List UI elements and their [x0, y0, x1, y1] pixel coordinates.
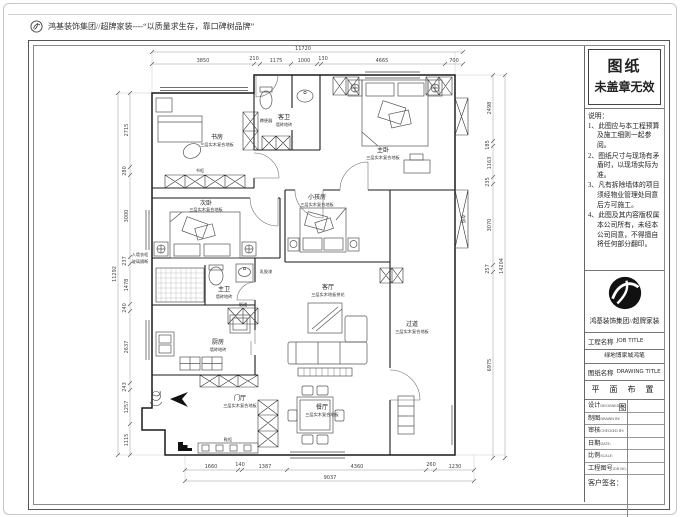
field-designed-en: DESIGNED BY:: [600, 404, 625, 408]
field-jobno-label: 工程图号: [588, 465, 613, 472]
room-foyer: 门厅: [234, 394, 246, 402]
annotation-wall-note1: 入墙衣柜: [132, 251, 149, 258]
room-study: 书房: [211, 133, 223, 141]
room-master-material: 三层实木复合地板: [366, 154, 400, 161]
shoe-cabinet: [198, 443, 258, 453]
room-kitchen-material: 墙砖地砖: [210, 346, 227, 353]
entry-marker: [150, 390, 188, 407]
notes-title: 说明：: [588, 112, 661, 122]
dim-right-1: 185: [485, 140, 491, 150]
dim-left-1: 280: [122, 166, 128, 176]
dim-bottom-0: 1660: [205, 464, 218, 470]
dim-left-8: 1257: [124, 401, 130, 414]
company-logo-large-icon: [606, 274, 644, 312]
dim-right-4: 3070: [487, 219, 493, 232]
dim-left-6: 2637: [124, 341, 130, 354]
field-checked-label: 审核: [588, 427, 600, 434]
note-3: 3、凡有拆除墙体的项目须经物业管理处同意后方可施工。: [588, 181, 661, 210]
annotation-wardrobe: 衣柜: [460, 215, 467, 223]
dim-top-1: 210: [249, 56, 259, 62]
dimension-ticks: [116, 50, 507, 483]
dim-left-total: 11292: [112, 266, 118, 282]
dim-bottom-2: 1387: [259, 464, 272, 470]
room-dining-material: 三层实木复合地板: [305, 411, 339, 418]
outer-walls: [142, 75, 455, 455]
door-swings: [237, 75, 420, 400]
annotation-flue: 烟道: [239, 301, 248, 308]
dim-top-4: 130: [318, 56, 328, 62]
tv-console: [298, 368, 352, 376]
room-guest-bath: 客卫: [278, 113, 290, 121]
dim-top-2: 1175: [270, 58, 283, 64]
room-study-material: 三层实木复合地板: [200, 141, 234, 148]
field-jobno-en: JOB NO.:: [613, 467, 628, 471]
stamp-line1: 图纸: [589, 55, 660, 76]
basin: [239, 268, 251, 277]
title-block: 图纸 未盖章无效 说明： 1、此图应与本工程预算及施工细则一起参阅。 2、图纸尺…: [584, 46, 664, 502]
field-date-en: DATE:: [600, 442, 611, 446]
field-jobno: 工程图号JOB NO.:: [585, 463, 664, 476]
room-hallway: 过道: [406, 320, 418, 328]
field-scale-label: 比例: [588, 452, 600, 459]
sofa: [288, 342, 367, 364]
signature-row: 客户签名：: [585, 475, 664, 517]
dim-left-5: 240: [122, 303, 128, 313]
room-living-material: 三层实木地板拼花: [311, 291, 345, 298]
dim-bottom-5: 1230: [449, 464, 462, 470]
field-drawn-label: 制图: [588, 415, 600, 422]
field-scale: 比例SCALE:: [585, 450, 664, 463]
dim-right-6: 6975: [487, 359, 493, 372]
dim-left-4: 1478: [124, 279, 130, 292]
logo-section: 鸿基装饰集团//超牌家装: [585, 270, 664, 332]
room-master: 主卧: [377, 146, 389, 154]
annotation-shoe: 鞋柜: [224, 436, 232, 443]
drawing-label: 图纸名称: [588, 368, 614, 377]
dim-top-6: 700: [449, 58, 459, 64]
second-bed: [170, 212, 240, 258]
floor-plan: 11720 3850 210 1175 1000 130 4665 700 90…: [0, 0, 680, 517]
step-mark: [178, 442, 192, 451]
dim-right-0: 2498: [487, 102, 493, 115]
job-label-en: JOB TITLE: [617, 338, 644, 344]
note-2: 2、图纸尺寸与现场有矛盾时，以现场实际为准。: [588, 152, 661, 181]
company-name: 鸿基装饰集团//超牌家装: [585, 315, 664, 325]
room-second-material: 三层实木复合地板: [189, 206, 223, 213]
room-living: 客厅: [322, 283, 334, 291]
fields-table: 设计DESIGNED BY: 制图DRAWN BY: 审核CHECKED BY:…: [585, 399, 664, 475]
master-dresser: [404, 160, 430, 173]
job-label: 工程名称: [588, 337, 614, 346]
stamp-box: 图纸 未盖章无效: [588, 49, 661, 105]
guest-basin: [297, 90, 313, 102]
drawing-label-en: DRAWING TITLE: [617, 369, 661, 375]
annotation-paint: 乳胶漆: [260, 268, 273, 275]
signature-label: 客户签名：: [588, 479, 623, 487]
dim-left-7: 243: [122, 382, 128, 392]
shower-tile-grid: [156, 268, 204, 302]
room-dining: 餐厅: [316, 403, 328, 411]
drawing-title-row: 图纸名称 DRAWING TITLE: [585, 363, 664, 380]
sofa-chaise: [345, 316, 367, 342]
room-kids: 小孩房: [308, 193, 326, 201]
room-guest-bath-material: 墙砖地砖: [276, 121, 293, 128]
job-title-row: 工程名称 JOB TITLE: [585, 332, 664, 349]
field-date: 日期DATE:: [585, 438, 664, 451]
dim-top-total: 11720: [295, 46, 311, 52]
room-master-bath: 主卫: [218, 285, 230, 293]
room-master-bath-material: 墙砖地砖: [216, 293, 233, 300]
entry-arrow-icon: [170, 392, 188, 407]
study-desk: [158, 116, 202, 142]
dim-bottom-4: 260: [426, 462, 436, 468]
drawing-title-text: 平 面 布 置 图: [585, 380, 664, 399]
field-drawn: 制图DRAWN BY:: [585, 413, 664, 426]
room-kitchen: 厨房: [212, 338, 224, 346]
dim-left-3: 237: [122, 256, 128, 266]
field-designed-label: 设计: [588, 402, 600, 409]
note-1: 1、此图应与本工程预算及施工细则一起参阅。: [588, 122, 661, 151]
furniture: [154, 80, 442, 453]
field-checked: 审核CHECKED BY:: [585, 425, 664, 438]
room-labels: 书房 三层实木复合地板 客卫 墙砖地砖 主卧 三层实木复合地板 次卧 三层实木复…: [189, 113, 429, 418]
dim-right-2: 1163: [487, 157, 493, 170]
interior-walls: [152, 75, 455, 455]
project-name: 绿地博家城鸿笔: [585, 349, 664, 363]
dim-bottom-1: 140: [235, 462, 245, 468]
dim-top-0: 3850: [197, 58, 210, 64]
dim-right-3: 235: [485, 177, 491, 187]
dim-right-5: 257: [485, 264, 491, 274]
room-kids-material: 三层实木复合地板: [300, 201, 334, 208]
annotation-squat: 蹲便器: [260, 117, 273, 124]
annotation-wall-note2: 玻璃隔断: [132, 258, 150, 265]
dim-top-5: 4665: [376, 58, 389, 64]
field-date-label: 日期: [588, 440, 600, 447]
field-drawn-en: DRAWN BY:: [600, 417, 620, 421]
field-scale-en: SCALE:: [600, 454, 613, 458]
squat-toilet: [260, 91, 272, 109]
dim-left-2: 3000: [124, 210, 130, 223]
field-checked-en: CHECKED BY:: [600, 429, 624, 433]
room-foyer-material: 三层实木复合地板: [223, 402, 257, 409]
stamp-line2: 未盖章无效: [589, 78, 660, 95]
note-4: 4、此图及其内容版权属本公司所有，未经本公司同意，不得擅自将任何部分翻印。: [588, 211, 661, 250]
radiator: [398, 396, 414, 434]
dim-right-total: 14204: [499, 258, 505, 274]
drawing-sheet: 鸿基装饰集团//超牌家装----“以质量求生存，靠口碑树品牌” 11720 38…: [0, 0, 680, 517]
room-second: 次卧: [200, 199, 212, 207]
annotation-bookcase: 书柜: [196, 167, 204, 174]
dim-top-3: 1000: [298, 58, 311, 64]
annotations: 书柜 衣柜 烟道 鞋柜 蹲便器 入墙衣柜 玻璃隔断 乳胶漆: [132, 117, 467, 443]
dim-left-0: 2715: [124, 124, 130, 137]
dim-bottom-3: 4360: [351, 464, 364, 470]
dim-left-9: 1115: [124, 434, 130, 447]
notes-section: 说明： 1、此图应与本工程预算及施工细则一起参阅。 2、图纸尺寸与现场有矛盾时，…: [585, 108, 664, 270]
field-designed: 设计DESIGNED BY:: [585, 400, 664, 413]
dim-bottom-total: 9037: [324, 475, 337, 481]
room-hallway-material: 三层实木复合地板: [395, 328, 429, 335]
